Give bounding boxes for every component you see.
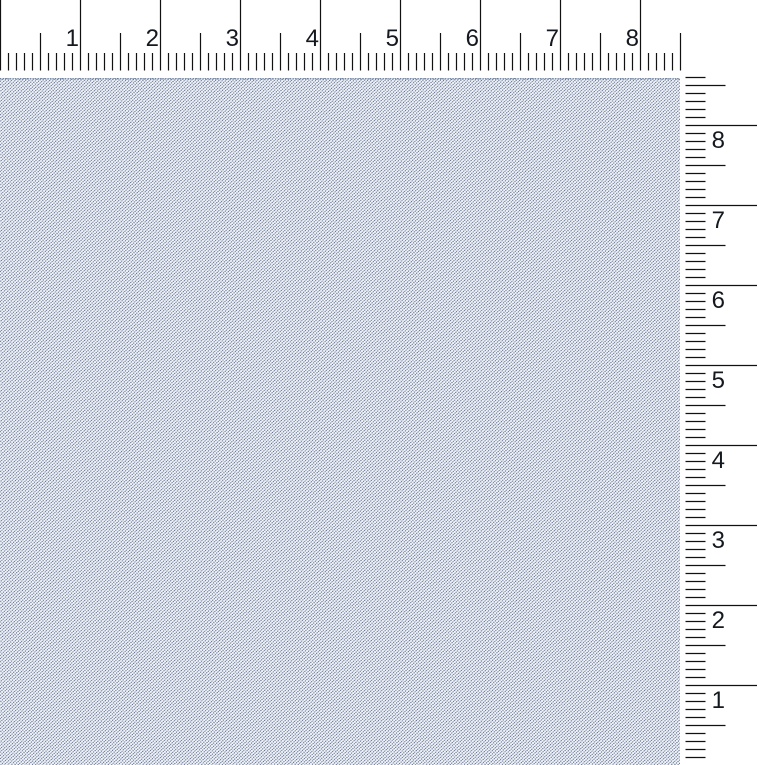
svg-text:8: 8 (626, 25, 639, 52)
svg-text:7: 7 (546, 25, 559, 52)
svg-text:4: 4 (306, 25, 319, 52)
svg-text:7: 7 (712, 207, 725, 234)
svg-text:2: 2 (712, 607, 725, 634)
svg-text:2: 2 (146, 25, 159, 52)
svg-text:8: 8 (712, 127, 725, 154)
svg-text:1: 1 (712, 687, 725, 714)
svg-text:3: 3 (226, 25, 239, 52)
svg-text:5: 5 (386, 25, 399, 52)
svg-text:3: 3 (712, 527, 725, 554)
svg-text:5: 5 (712, 367, 725, 394)
svg-text:6: 6 (466, 25, 479, 52)
svg-text:4: 4 (712, 447, 725, 474)
svg-text:1: 1 (66, 25, 79, 52)
svg-text:6: 6 (712, 287, 725, 314)
